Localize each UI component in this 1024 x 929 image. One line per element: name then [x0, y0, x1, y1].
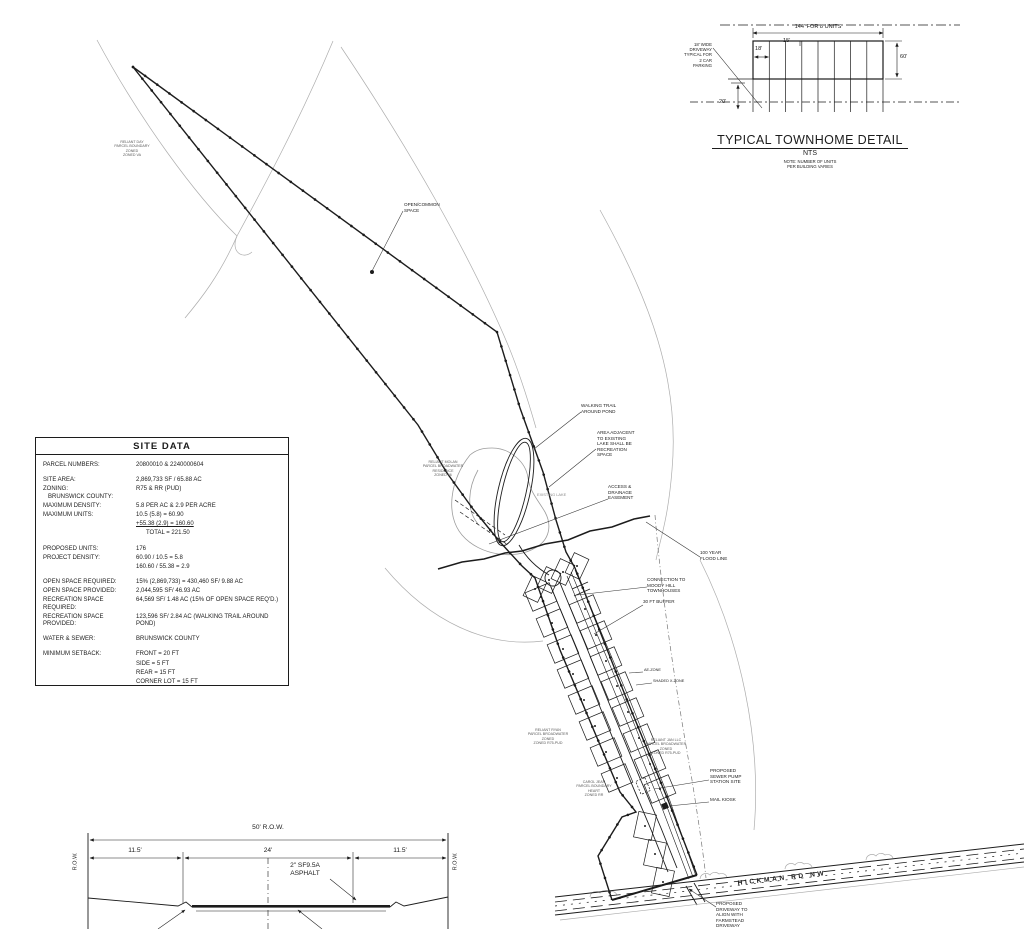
row-value: BRUNSWICK COUNTY — [136, 636, 200, 643]
row-value: 2,044,595 SF/ 46.93 AC — [136, 588, 200, 595]
table-row: OPEN SPACE REQUIRED:15% (2,869,733) = 43… — [43, 579, 283, 586]
site-data-table: SITE DATA PARCEL NUMBERS:20800010 & 2240… — [35, 437, 289, 686]
existing-lake-label: EXISTING LAKE — [537, 493, 566, 498]
row-value: TOTAL = 221.50 — [136, 530, 190, 537]
driveway-note: 18' WIDE DRIVEWAY TYPICAL FOR 2 CAR PARK… — [668, 42, 712, 68]
row-label — [43, 521, 136, 528]
adjacent-parcel-note: RELIANT RYAN PARCEL BROADWATER ZONED ZON… — [520, 728, 576, 746]
adjacent-parcel-note: RELIANT MOLAN PARCEL BROADWATER RESIDENC… — [415, 460, 471, 478]
adjacent-parcel-note: RELIANT DAY PARCEL BOUNDARY ZONED ZONED … — [104, 140, 160, 158]
row-label: PROJECT DENSITY: — [43, 555, 136, 562]
mail-kiosk-label: MAIL KIOSK — [710, 797, 736, 803]
flood-line-label: 100 YEAR FLOOD LINE — [700, 550, 727, 561]
dim-end-unit: 18' — [755, 46, 762, 53]
proposed-driveway-label: PROPOSED DRIVEWAY TO ALIGN WITH FARMSTEA… — [716, 901, 747, 929]
row-label — [43, 661, 136, 668]
row-label: MINIMUM SETBACK: — [43, 651, 136, 658]
table-row: 160.60 / 55.38 = 2.9 — [43, 564, 283, 571]
row-label: OPEN SPACE PROVIDED: — [43, 588, 136, 595]
shaded-zone-label: SHADED X-ZONE — [653, 679, 684, 684]
row-label: MAXIMUM UNITS: — [43, 512, 136, 519]
row-label: PARCEL NUMBERS: — [43, 462, 136, 469]
table-row: SIDE = 5 FT — [43, 661, 283, 668]
site-data-body: PARCEL NUMBERS:20800010 & 2240000604 SIT… — [36, 455, 288, 686]
table-row: ZONING: BRUNSWICK COUNTY:R75 & RR (PUD) — [43, 486, 283, 500]
open-common-space-label: OPEN/COMMON SPACE — [404, 202, 440, 213]
row-value: CORNER LOT = 15 FT — [136, 679, 198, 686]
row-value: 60.90 / 10.5 = 5.8 — [136, 555, 183, 562]
row-label-left: R.O.W. — [73, 843, 80, 879]
dim-interior-unit: 15' — [783, 38, 790, 45]
ae-zone-label: AE-ZONE — [644, 668, 661, 673]
dim-left-shoulder: 11.5' — [105, 847, 165, 855]
row-value: FRONT = 20 FT — [136, 651, 179, 658]
row-value: SIDE = 5 FT — [136, 661, 169, 668]
row-label — [43, 679, 136, 686]
row-value: 15% (2,869,733) = 430,460 SF/ 9.88 AC — [136, 579, 243, 586]
row-value: 5.8 PER AC & 2.9 PER ACRE — [136, 503, 216, 510]
row-value: 10.5 (5.8) = 60.90 — [136, 512, 184, 519]
table-row: TOTAL = 221.50 — [43, 530, 283, 537]
site-data-title: SITE DATA — [36, 438, 288, 455]
row-value: +55.38 (2.9) = 160.60 — [136, 521, 194, 528]
table-row: PROJECT DENSITY:60.90 / 10.5 = 5.8 — [43, 555, 283, 562]
leader-lines — [372, 211, 716, 907]
table-row: MINIMUM SETBACK:FRONT = 20 FT — [43, 651, 283, 658]
table-row: +55.38 (2.9) = 160.60 — [43, 521, 283, 528]
connection-label: CONNECTION TO MOODY HILL TOWNHOUSES — [647, 577, 685, 594]
row-label — [43, 564, 136, 571]
row-value: 160.60 / 55.38 = 2.9 — [136, 564, 190, 571]
row-label — [43, 530, 136, 537]
asphalt-note: 2" SF9.5A ASPHALT — [275, 862, 335, 878]
dim-pavement: 24' — [238, 847, 298, 855]
row-value: 2,869,733 SF / 65.88 AC — [136, 477, 202, 484]
row-label-right: R.O.W. — [453, 843, 460, 879]
recreation-area-label: AREA ADJACENT TO EXISTING LAKE SHALL BE … — [597, 430, 635, 458]
table-row: OPEN SPACE PROVIDED:2,044,595 SF/ 46.93 … — [43, 588, 283, 595]
table-row: SITE AREA:2,869,733 SF / 65.88 AC — [43, 477, 283, 484]
row-label: RECREATION SPACE REQUIRED: — [43, 597, 136, 611]
row-label: OPEN SPACE REQUIRED: — [43, 579, 136, 586]
row-width-dim: 50' R.O.W. — [218, 824, 318, 832]
table-row: PARCEL NUMBERS:20800010 & 2240000604 — [43, 462, 283, 469]
dim-driveway-length: 20' — [719, 99, 726, 106]
dim-right-shoulder: 11.5' — [370, 847, 430, 855]
row-value: 176 — [136, 546, 146, 553]
table-row: PROPOSED UNITS:176 — [43, 546, 283, 553]
row-value: 123,596 SF/ 2.84 AC (WALKING TRAIL AROUN… — [136, 614, 283, 628]
hickman-road — [555, 844, 1024, 920]
buffer-lines — [567, 570, 696, 879]
table-row: RECREATION SPACE REQUIRED:64,569 SF/ 1.4… — [43, 597, 283, 611]
row-value: 20800010 & 2240000604 — [136, 462, 203, 469]
row-value: R75 & RR (PUD) — [136, 486, 181, 500]
dim-depth: 60' — [900, 54, 907, 61]
townhome-detail-note: NOTE: NUMBER OF UNITS PER BUILDING VARIE… — [712, 159, 908, 170]
table-row: CORNER LOT = 15 FT — [43, 679, 283, 686]
pump-station-label: PROPOSED SEWER PUMP STATION SITE — [710, 768, 741, 785]
flood-zone-boundary — [655, 515, 706, 878]
townhome-detail-scale: NTS — [712, 150, 908, 157]
row-label: ZONING: BRUNSWICK COUNTY: — [43, 486, 136, 500]
row-label: RECREATION SPACE PROVIDED: — [43, 614, 136, 628]
drainage-easement — [455, 500, 508, 545]
table-row: MAXIMUM DENSITY:5.8 PER AC & 2.9 PER ACR… — [43, 503, 283, 510]
table-row: WATER & SEWER:BRUNSWICK COUNTY — [43, 636, 283, 643]
row-label: SITE AREA: — [43, 477, 136, 484]
adjacent-parcel-note: RELIANT JAN LLC PARCEL BROADWATER ZONED … — [638, 738, 694, 756]
row-value: 64,569 SF/ 1.48 AC (15% OF OPEN SPACE RE… — [136, 597, 278, 611]
row-label: PROPOSED UNITS: — [43, 546, 136, 553]
row-value: REAR = 15 FT — [136, 670, 175, 677]
townhome-detail-lines — [690, 25, 960, 112]
row-label: MAXIMUM DENSITY: — [43, 503, 136, 510]
townhome-detail-title: TYPICAL TOWNHOME DETAIL — [712, 133, 908, 149]
table-row: MAXIMUM UNITS:10.5 (5.8) = 60.90 — [43, 512, 283, 519]
site-plan-sheet: 144' FOR 8 UNITS 18' 15' 60' 20' 18' WID… — [0, 0, 1024, 929]
access-easement-label: ACCESS & DRAINAGE EASEMENT — [608, 484, 633, 501]
walking-trail-label: WALKING TRAIL AROUND POND — [581, 403, 616, 414]
row-label — [43, 670, 136, 677]
table-row: RECREATION SPACE PROVIDED:123,596 SF/ 2.… — [43, 614, 283, 628]
dim-total-width: 144' FOR 8 UNITS — [768, 24, 868, 31]
buffer-label: 30 FT BUFFER — [643, 599, 675, 605]
adjacent-parcel-note: CAROL JEAN PARCEL BOUNDARY HEART ZONED R… — [566, 780, 622, 798]
table-row: REAR = 15 FT — [43, 670, 283, 677]
row-label: WATER & SEWER: — [43, 636, 136, 643]
